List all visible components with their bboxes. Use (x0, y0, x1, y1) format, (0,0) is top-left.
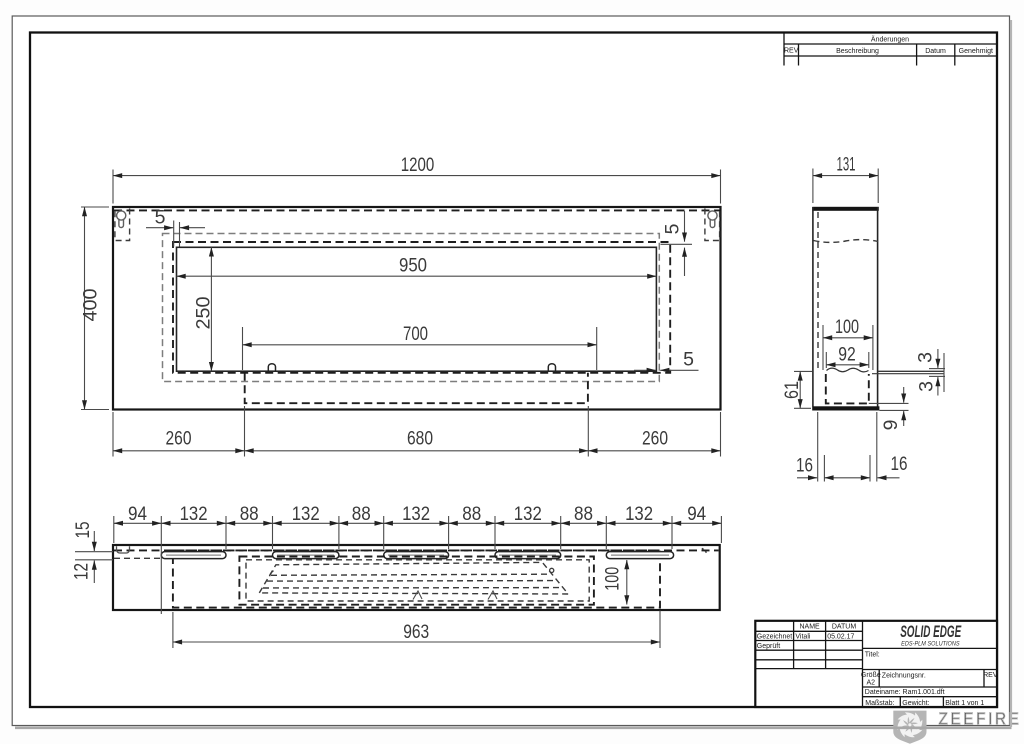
svg-text:1200: 1200 (401, 154, 435, 176)
svg-text:3: 3 (915, 352, 937, 363)
svg-text:Blatt 1 von 1: Blatt 1 von 1 (945, 700, 984, 707)
svg-text:12: 12 (71, 563, 93, 580)
svg-text:Dateiname: Ram1.001.dft: Dateiname: Ram1.001.dft (865, 689, 945, 696)
svg-text:16: 16 (796, 455, 813, 477)
svg-text:680: 680 (407, 428, 433, 450)
svg-text:250: 250 (193, 296, 215, 329)
svg-text:Maßstab:: Maßstab: (865, 700, 894, 707)
svg-text:950: 950 (399, 255, 427, 277)
svg-text:131: 131 (837, 154, 856, 176)
svg-text:260: 260 (166, 428, 192, 450)
svg-text:88: 88 (462, 503, 481, 525)
svg-text:5: 5 (155, 207, 166, 229)
svg-text:132: 132 (514, 503, 542, 525)
svg-text:132: 132 (292, 503, 320, 525)
svg-text:15: 15 (72, 521, 94, 538)
svg-text:DATUM: DATUM (832, 624, 857, 631)
svg-text:REV: REV (983, 672, 998, 679)
svg-text:Geprüft: Geprüft (757, 643, 780, 650)
svg-text:100: 100 (602, 567, 624, 591)
svg-text:Genehmigt: Genehmigt (959, 48, 993, 55)
svg-text:132: 132 (180, 503, 208, 525)
svg-text:Titel:: Titel: (865, 652, 880, 659)
svg-text:Gezeichnet: Gezeichnet (757, 634, 792, 641)
svg-text:A2: A2 (867, 679, 876, 686)
svg-text:Vitali: Vitali (795, 634, 810, 641)
svg-text:3: 3 (916, 381, 938, 392)
svg-text:Beschreibung: Beschreibung (836, 48, 879, 55)
svg-text:05.02.17: 05.02.17 (827, 634, 854, 641)
svg-text:61: 61 (781, 381, 803, 399)
svg-text:NAME: NAME (799, 624, 820, 631)
svg-text:EDS-PLM SOLUTIONS: EDS-PLM SOLUTIONS (901, 640, 960, 648)
svg-text:SOLID EDGE: SOLID EDGE (900, 622, 962, 640)
svg-text:Zeichnungsnr.: Zeichnungsnr. (882, 672, 926, 679)
svg-text:92: 92 (838, 344, 856, 366)
svg-text:9: 9 (880, 420, 902, 431)
svg-text:5: 5 (662, 223, 684, 234)
svg-text:260: 260 (642, 428, 668, 450)
svg-text:Gewicht:: Gewicht: (902, 700, 929, 707)
svg-text:132: 132 (402, 503, 430, 525)
svg-text:400: 400 (80, 288, 102, 321)
svg-text:16: 16 (891, 453, 908, 475)
svg-text:94: 94 (687, 503, 706, 525)
svg-text:88: 88 (240, 503, 259, 525)
svg-text:Änderungen: Änderungen (871, 36, 909, 44)
svg-text:88: 88 (352, 503, 371, 525)
svg-text:Größe: Größe (861, 672, 881, 679)
svg-text:5: 5 (683, 349, 694, 371)
svg-text:ZEEFIRE: ZEEFIRE (939, 708, 1022, 728)
svg-text:Datum: Datum (925, 48, 946, 55)
svg-text:700: 700 (403, 323, 428, 345)
svg-text:963: 963 (403, 621, 429, 643)
svg-text:100: 100 (835, 316, 859, 338)
svg-text:132: 132 (625, 503, 653, 525)
svg-text:94: 94 (128, 503, 147, 525)
svg-text:88: 88 (574, 503, 593, 525)
svg-text:REV: REV (784, 48, 799, 55)
